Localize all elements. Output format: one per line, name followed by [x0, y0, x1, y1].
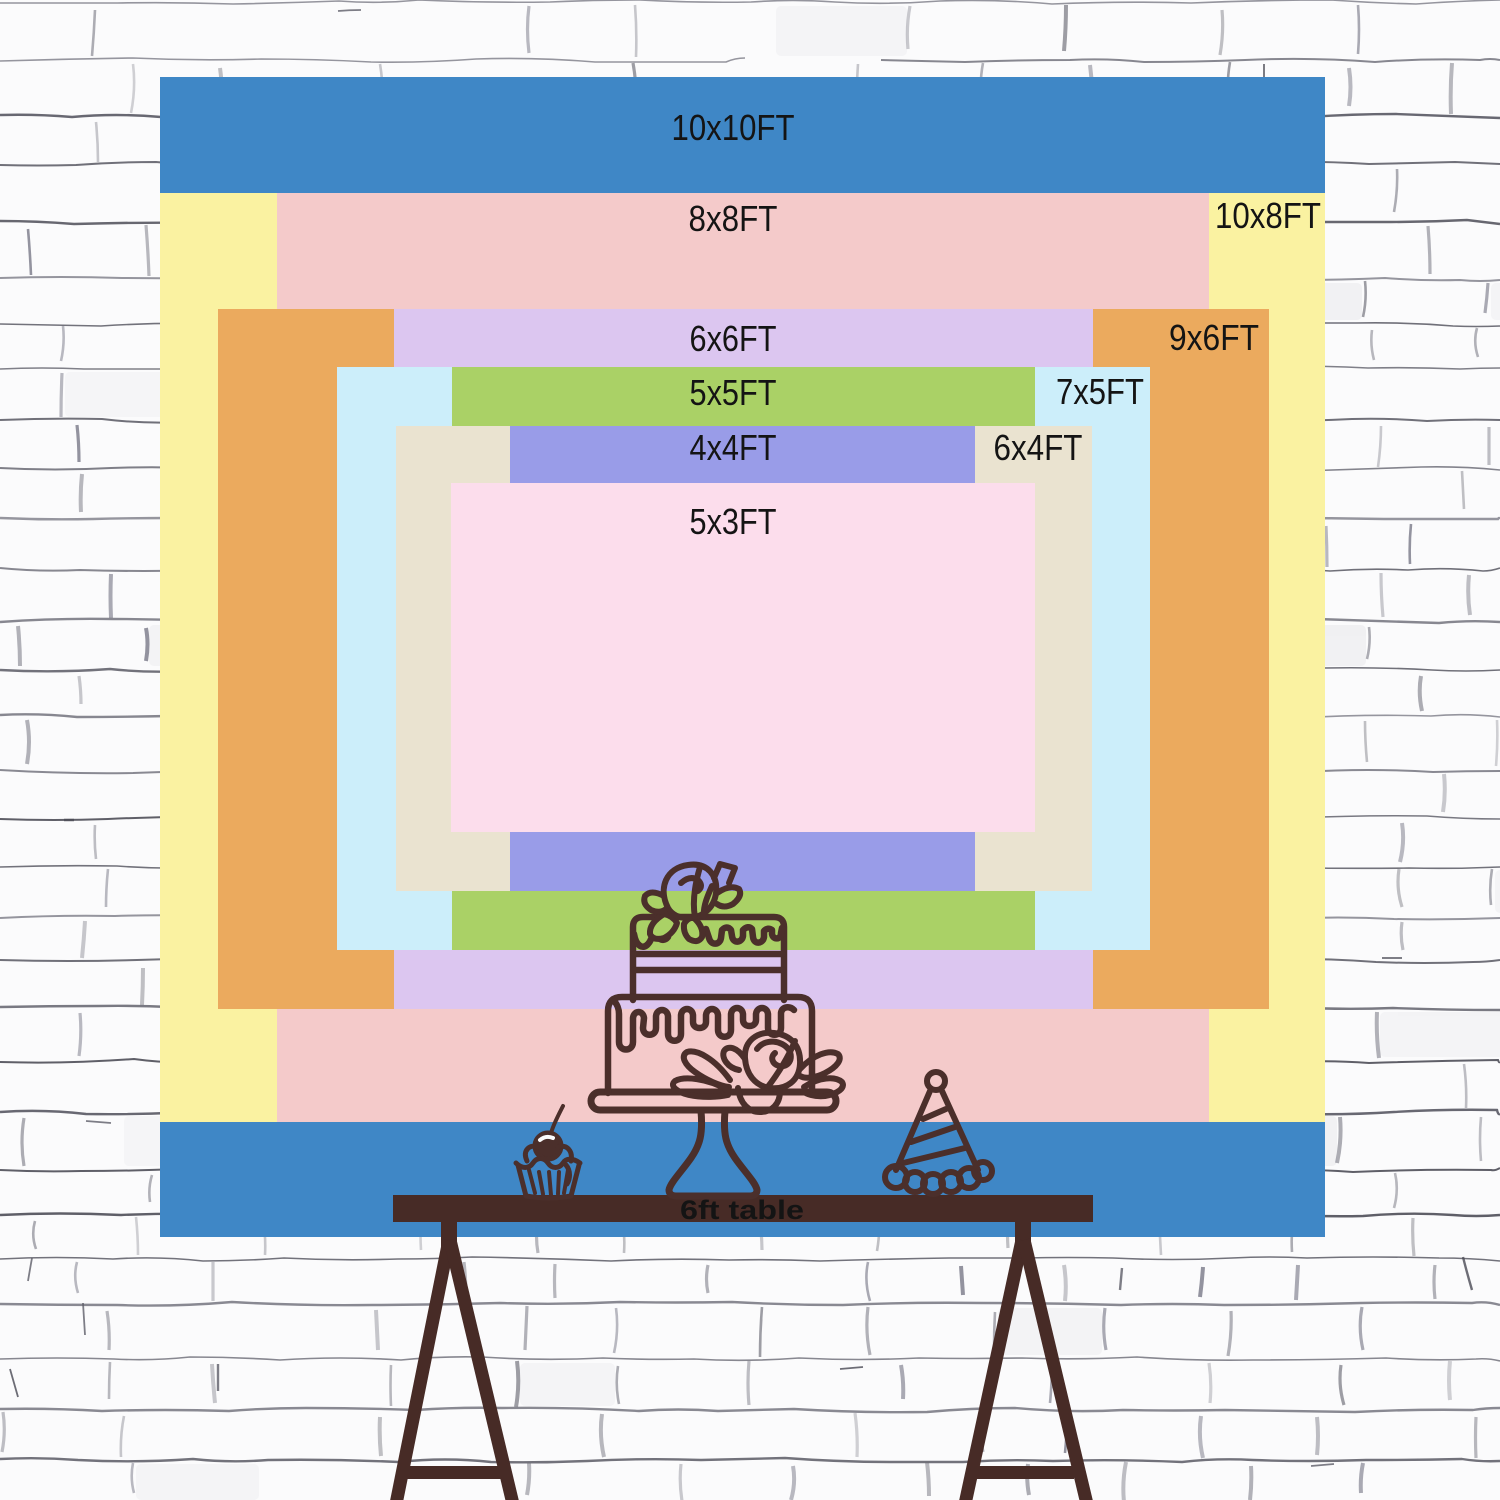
svg-text:10x8FT: 10x8FT — [1215, 195, 1321, 236]
svg-text:8x8FT: 8x8FT — [689, 198, 778, 239]
svg-text:6x6FT: 6x6FT — [690, 318, 777, 359]
svg-text:9x6FT: 9x6FT — [1169, 317, 1259, 358]
svg-text:5x3FT: 5x3FT — [690, 501, 777, 542]
svg-text:4x4FT: 4x4FT — [690, 427, 777, 468]
svg-text:10x10FT: 10x10FT — [672, 107, 795, 148]
svg-text:7x5FT: 7x5FT — [1056, 371, 1144, 412]
svg-text:6x4FT: 6x4FT — [994, 427, 1083, 468]
svg-text:5x5FT: 5x5FT — [690, 372, 777, 413]
